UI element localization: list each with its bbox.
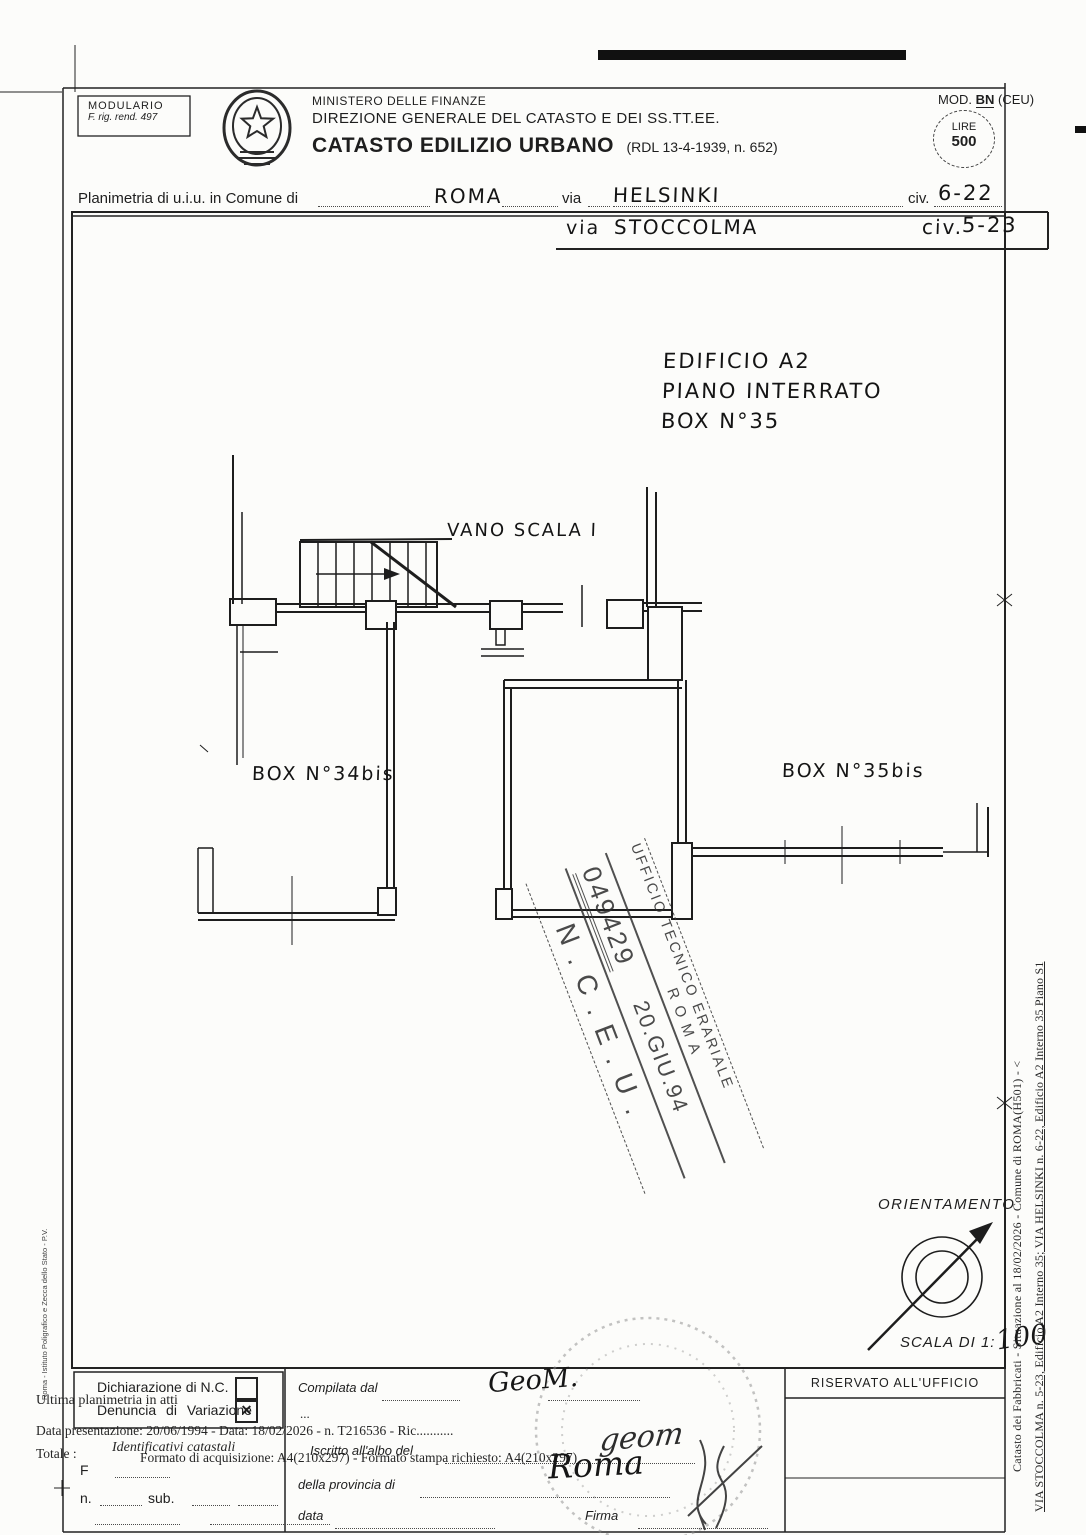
mod-prefix: MOD. <box>938 92 972 107</box>
document-title-row: CATASTO EDILIZIO URBANO (RDL 13-4-1939, … <box>312 134 778 158</box>
box34-label: BOX N°34bis <box>252 763 395 785</box>
orientation-label: ORIENTAMENTO <box>878 1196 1015 1213</box>
document-title-ref: (RDL 13-4-1939, n. 652) <box>626 139 777 155</box>
document-title: CATASTO EDILIZIO URBANO <box>312 134 614 157</box>
data-label: data <box>298 1508 323 1523</box>
annotation-line3: BOX N°35 <box>660 406 882 436</box>
compass-icon <box>868 1222 993 1350</box>
modulario-line2: F. rig. rend. 497 <box>88 112 164 123</box>
provincia-value: Roma <box>547 1443 645 1487</box>
box35bis-label: BOX N°35bis <box>782 760 925 782</box>
ultima-planimetria-overlay: Ultima planimetria in atti <box>36 1393 178 1409</box>
nc-checkbox <box>235 1377 258 1400</box>
annotation-line2: PIANO INTERRATO <box>661 376 883 406</box>
via2-label: via <box>566 217 601 239</box>
stair-core <box>647 487 682 680</box>
plan-annotation: EDIFICIO A2 PIANO INTERRATO BOX N°35 <box>660 346 884 436</box>
civ2-label: civ. <box>922 215 964 239</box>
iscritto-label: Iscritto all'albo del <box>310 1443 413 1458</box>
firma-label: Firma <box>585 1508 618 1523</box>
mod-suffix: (CEU) <box>998 92 1034 107</box>
fee-value: 500 <box>934 133 994 150</box>
field-sub: sub. <box>148 1490 174 1506</box>
provincia-label: della provincia di <box>298 1477 395 1492</box>
mod-code: MOD. BN (CEU) <box>938 92 1034 107</box>
state-emblem-icon <box>224 91 290 165</box>
via2-value: STOCCOLMA <box>614 215 759 239</box>
address-row1-label: Planimetria di u.i.u. in Comune di <box>78 190 298 207</box>
modulario-label: MODULARIO F. rig. rend. 497 <box>88 100 164 123</box>
data-presentazione-overlay: Data presentazione: 20/06/1994 - Data: 1… <box>36 1423 453 1439</box>
scale-label: SCALA DI 1: <box>900 1334 995 1351</box>
modulario-line1: MODULARIO <box>88 100 164 112</box>
box35bis-wing <box>693 803 988 884</box>
civ2-value: 5-23 <box>962 213 1019 237</box>
riservato-ufficio-title: RISERVATO ALL'UFFICIO <box>785 1376 1005 1390</box>
right-margin-line1: Catasto dei Fabbricati - Situazione al 1… <box>1010 1060 1025 1472</box>
via1-label: via <box>562 190 581 207</box>
fee-stamp: LIRE 500 <box>933 110 995 168</box>
signature-scribble <box>688 1440 762 1530</box>
identificativi-title: Identificativi catastali <box>112 1440 235 1456</box>
field-n: n. <box>80 1490 92 1506</box>
stairwell-label: VANO SCALA I <box>447 520 599 541</box>
compilata-label: Compilata dal <box>298 1380 378 1395</box>
ministry-division: DIREZIONE GENERALE DEL CATASTO E DEI SS.… <box>312 110 720 127</box>
scanned-cadastral-document: MODULARIO F. rig. rend. 497 MINISTERO DE… <box>0 0 1086 1535</box>
totale-overlay: Totale : <box>36 1446 77 1462</box>
civ1-label: civ. <box>908 190 929 207</box>
right-margin-line2: VIA STOCCOLMA n. 5-23, Edificio A2 Inter… <box>1032 961 1047 1512</box>
printer-imprint-vertical: Roma - Istituto Poligrafico e Zecca dell… <box>40 1229 49 1400</box>
staircase <box>300 539 456 607</box>
page-frame <box>63 83 1048 1532</box>
dots-mark: ... <box>300 1406 310 1422</box>
mod-bn: BN <box>976 92 995 108</box>
comune-value: ROMA <box>434 184 503 208</box>
variazione-checkbox: ✕ <box>235 1400 258 1423</box>
field-f: F <box>80 1462 89 1478</box>
ministry-name: MINISTERO DELLE FINANZE <box>312 94 486 108</box>
annotation-line1: EDIFICIO A2 <box>663 346 885 376</box>
fee-lire: LIRE <box>934 121 994 133</box>
